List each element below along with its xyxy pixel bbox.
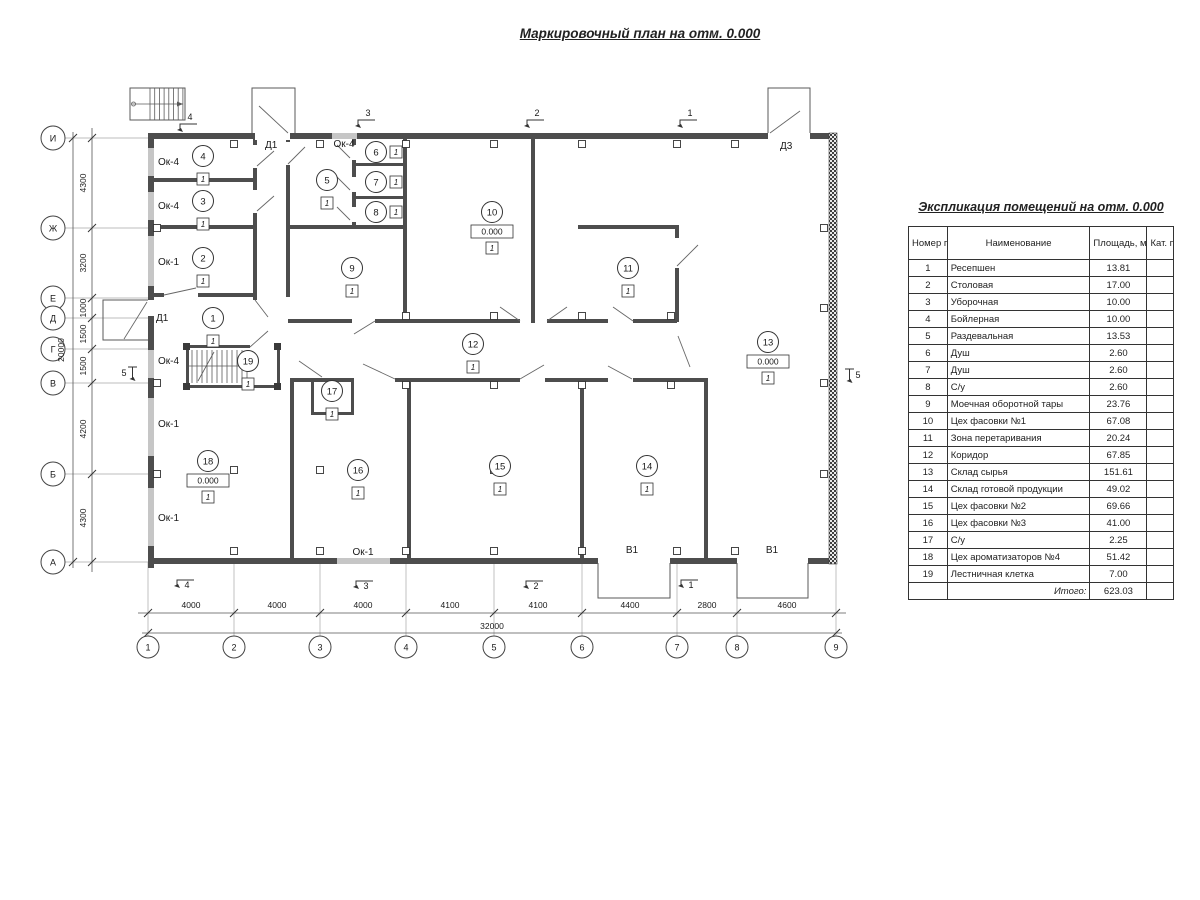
svg-text:9: 9 xyxy=(349,263,354,274)
table-row: 12Коридор67.85 xyxy=(909,447,1174,464)
plan-label: Д1 xyxy=(265,140,278,151)
svg-text:2: 2 xyxy=(200,253,205,264)
cell-category xyxy=(1147,277,1174,294)
cell-area: 2.25 xyxy=(1090,532,1147,549)
cell-name: Склад готовой продукции xyxy=(947,481,1090,498)
cell-category xyxy=(1147,328,1174,345)
cell-category xyxy=(1147,498,1174,515)
plan-label: Ок-4 xyxy=(333,139,354,150)
svg-text:18: 18 xyxy=(203,456,214,467)
cell-number: 11 xyxy=(909,430,948,447)
svg-text:1: 1 xyxy=(687,108,692,118)
plan-label: Ок-4 xyxy=(158,157,179,168)
svg-text:4: 4 xyxy=(184,580,189,590)
table-row: 9Моечная оборотной тары23.76 xyxy=(909,396,1174,413)
cell-number: 1 xyxy=(909,260,948,277)
cell-name: Душ xyxy=(947,345,1090,362)
svg-text:4100: 4100 xyxy=(441,600,460,610)
svg-text:1: 1 xyxy=(626,287,630,296)
svg-text:1: 1 xyxy=(688,580,693,590)
room-marker: 161 xyxy=(348,460,369,500)
cell-category xyxy=(1147,413,1174,430)
room-marker: 180.0001 xyxy=(187,451,229,504)
cell-number: 8 xyxy=(909,379,948,396)
stairwell-icon xyxy=(189,350,247,383)
svg-text:3200: 3200 xyxy=(78,253,88,272)
svg-text:4300: 4300 xyxy=(78,173,88,192)
plan-label: Д3 xyxy=(780,141,793,152)
svg-text:1: 1 xyxy=(211,337,215,346)
room-marker: 151 xyxy=(490,456,511,496)
svg-text:6: 6 xyxy=(373,147,378,158)
svg-text:А: А xyxy=(50,558,56,568)
room-marker: 71 xyxy=(366,172,403,193)
svg-text:4: 4 xyxy=(187,112,192,122)
cell-area: 2.60 xyxy=(1090,345,1147,362)
svg-text:10: 10 xyxy=(487,207,498,218)
svg-text:3: 3 xyxy=(200,196,205,207)
cell-category xyxy=(1147,294,1174,311)
cell-category xyxy=(1147,515,1174,532)
cell-category xyxy=(1147,345,1174,362)
svg-text:19: 19 xyxy=(243,356,254,367)
cell-number: 17 xyxy=(909,532,948,549)
room-marker: 111 xyxy=(618,258,639,298)
table-row: 3Уборочная10.00 xyxy=(909,294,1174,311)
total-label: Итого: xyxy=(947,583,1090,600)
plan-label: В1 xyxy=(626,545,639,556)
svg-text:8: 8 xyxy=(373,207,378,218)
cell-name: Душ xyxy=(947,362,1090,379)
cell-category xyxy=(1147,464,1174,481)
cell-category xyxy=(1147,481,1174,498)
table-row: 11Зона перетаривания20.24 xyxy=(909,430,1174,447)
col-header-area: Площадь, м2 xyxy=(1090,227,1147,260)
room-marker: 141 xyxy=(637,456,658,496)
cell-number: 16 xyxy=(909,515,948,532)
plan-label: Д1 xyxy=(156,313,169,324)
cell-area: 7.00 xyxy=(1090,566,1147,583)
cell-name: С/у xyxy=(947,532,1090,549)
svg-text:Е: Е xyxy=(50,294,56,304)
room-marker: 191 xyxy=(238,351,259,391)
plan-label: Ок-4 xyxy=(158,201,179,212)
table-row: 7Душ2.60 xyxy=(909,362,1174,379)
cell-area: 23.76 xyxy=(1090,396,1147,413)
svg-text:2: 2 xyxy=(534,108,539,118)
total-value: 623.03 xyxy=(1090,583,1147,600)
svg-text:1: 1 xyxy=(356,489,360,498)
explication-panel: Экспликация помещений на отм. 0.000 Номе… xyxy=(908,200,1174,600)
svg-text:1: 1 xyxy=(201,277,205,286)
cell-number: 9 xyxy=(909,396,948,413)
cell-name: Моечная оборотной тары xyxy=(947,396,1090,413)
svg-text:1: 1 xyxy=(394,148,398,157)
svg-text:Д: Д xyxy=(50,314,56,324)
svg-text:4: 4 xyxy=(200,151,205,162)
cell-name: Ресепшен xyxy=(947,260,1090,277)
cell-number xyxy=(909,583,948,600)
room-marker: 81 xyxy=(366,202,403,223)
cell-area: 151.61 xyxy=(1090,464,1147,481)
svg-text:20000: 20000 xyxy=(56,338,66,362)
svg-text:3: 3 xyxy=(365,108,370,118)
svg-text:1: 1 xyxy=(246,380,250,389)
explication-title: Экспликация помещений на отм. 0.000 xyxy=(908,200,1174,214)
svg-text:4600: 4600 xyxy=(778,600,797,610)
plan-label: Ок-4 xyxy=(158,356,179,367)
svg-text:1: 1 xyxy=(471,363,475,372)
svg-text:5: 5 xyxy=(121,368,126,378)
cell-number: 10 xyxy=(909,413,948,430)
cell-number: 2 xyxy=(909,277,948,294)
cell-name: Цех фасовки №1 xyxy=(947,413,1090,430)
svg-text:2: 2 xyxy=(231,643,236,653)
svg-text:0.000: 0.000 xyxy=(757,357,779,367)
cell-category xyxy=(1147,311,1174,328)
svg-text:И: И xyxy=(50,134,56,144)
svg-text:2: 2 xyxy=(533,581,538,591)
cell-number: 13 xyxy=(909,464,948,481)
table-row: 19Лестничная клетка7.00 xyxy=(909,566,1174,583)
svg-text:14: 14 xyxy=(642,461,653,472)
exterior-stair-icon xyxy=(132,88,184,120)
svg-text:1: 1 xyxy=(201,220,205,229)
cell-number: 5 xyxy=(909,328,948,345)
table-row: 1Ресепшен13.81 xyxy=(909,260,1174,277)
cell-number: 12 xyxy=(909,447,948,464)
svg-text:0.000: 0.000 xyxy=(481,227,503,237)
cell-number: 3 xyxy=(909,294,948,311)
cell-name: Раздевальная xyxy=(947,328,1090,345)
svg-text:Г: Г xyxy=(51,345,56,355)
svg-text:1500: 1500 xyxy=(78,324,88,343)
svg-text:1000: 1000 xyxy=(78,298,88,317)
svg-text:4300: 4300 xyxy=(78,508,88,527)
plan-label: Ок-1 xyxy=(158,513,179,524)
svg-text:1: 1 xyxy=(201,175,205,184)
svg-text:5: 5 xyxy=(855,370,860,380)
room-marker: 51 xyxy=(317,170,338,210)
svg-text:4000: 4000 xyxy=(268,600,287,610)
cell-category xyxy=(1147,566,1174,583)
table-row: 14Склад готовой продукции49.02 xyxy=(909,481,1174,498)
svg-text:3: 3 xyxy=(317,643,322,653)
cell-category xyxy=(1147,430,1174,447)
explication-table: Номер помещ. Наименование Площадь, м2 Ка… xyxy=(908,226,1174,600)
svg-text:1: 1 xyxy=(394,178,398,187)
svg-text:Ж: Ж xyxy=(49,224,58,234)
table-row: 18Цех ароматизаторов №451.42 xyxy=(909,549,1174,566)
cell-name: Лестничная клетка xyxy=(947,566,1090,583)
table-row: 6Душ2.60 xyxy=(909,345,1174,362)
cell-name: Цех фасовки №3 xyxy=(947,515,1090,532)
cell-category xyxy=(1147,379,1174,396)
cell-category xyxy=(1147,260,1174,277)
table-row: 17С/у2.25 xyxy=(909,532,1174,549)
cell-area: 10.00 xyxy=(1090,311,1147,328)
cell-name: Бойлерная xyxy=(947,311,1090,328)
svg-text:12: 12 xyxy=(468,339,479,350)
svg-text:1: 1 xyxy=(350,287,354,296)
svg-text:4100: 4100 xyxy=(529,600,548,610)
table-row: 16Цех фасовки №341.00 xyxy=(909,515,1174,532)
table-row: 5Раздевальная13.53 xyxy=(909,328,1174,345)
col-header-category: Кат. пом. xyxy=(1147,227,1174,260)
cell-number: 14 xyxy=(909,481,948,498)
col-header-name: Наименование xyxy=(947,227,1090,260)
cell-area: 67.85 xyxy=(1090,447,1147,464)
plan-label: Ок-1 xyxy=(158,257,179,268)
svg-text:1: 1 xyxy=(498,485,502,494)
col-header-number: Номер помещ. xyxy=(909,227,948,260)
plan-label: Ок-1 xyxy=(158,419,179,430)
svg-text:3: 3 xyxy=(363,581,368,591)
cell-area: 2.60 xyxy=(1090,362,1147,379)
svg-text:17: 17 xyxy=(327,386,338,397)
drawing-sheet: { "page": { "title": "Маркировочный план… xyxy=(0,0,1200,900)
svg-text:1: 1 xyxy=(490,244,494,253)
cell-number: 15 xyxy=(909,498,948,515)
cell-area: 67.08 xyxy=(1090,413,1147,430)
svg-text:7: 7 xyxy=(674,643,679,653)
room-marker: 91 xyxy=(342,258,363,298)
cell-area: 10.00 xyxy=(1090,294,1147,311)
cell-area: 13.53 xyxy=(1090,328,1147,345)
cell-name: Зона перетаривания xyxy=(947,430,1090,447)
plan-label: Ок-1 xyxy=(352,547,373,558)
svg-text:1: 1 xyxy=(645,485,649,494)
svg-text:4: 4 xyxy=(403,643,408,653)
cell-area: 51.42 xyxy=(1090,549,1147,566)
svg-text:1: 1 xyxy=(206,493,210,502)
cell-name: Склад сырья xyxy=(947,464,1090,481)
cell-name: Столовая xyxy=(947,277,1090,294)
table-row: 10Цех фасовки №167.08 xyxy=(909,413,1174,430)
svg-text:15: 15 xyxy=(495,461,506,472)
room-marker: 31 xyxy=(193,191,214,231)
cell-number: 18 xyxy=(909,549,948,566)
door-swings xyxy=(124,106,800,379)
cell-category xyxy=(1147,583,1174,600)
svg-text:4000: 4000 xyxy=(354,600,373,610)
room-marker: 100.0001 xyxy=(471,202,513,255)
svg-text:2800: 2800 xyxy=(698,600,717,610)
plan-label: В1 xyxy=(766,545,779,556)
svg-text:1: 1 xyxy=(330,410,334,419)
cell-number: 19 xyxy=(909,566,948,583)
cell-category xyxy=(1147,447,1174,464)
cell-name: Уборочная xyxy=(947,294,1090,311)
svg-text:5: 5 xyxy=(491,643,496,653)
cell-area: 17.00 xyxy=(1090,277,1147,294)
svg-text:1500: 1500 xyxy=(78,356,88,375)
svg-text:13: 13 xyxy=(763,337,774,348)
svg-text:1: 1 xyxy=(145,643,150,653)
cell-number: 4 xyxy=(909,311,948,328)
svg-text:6: 6 xyxy=(579,643,584,653)
cell-area: 2.60 xyxy=(1090,379,1147,396)
room-marker: 11 xyxy=(203,308,224,348)
room-marker: 61 xyxy=(366,142,403,163)
svg-text:В: В xyxy=(50,379,56,389)
walls xyxy=(148,133,837,568)
table-row: 13Склад сырья151.61 xyxy=(909,464,1174,481)
svg-text:1: 1 xyxy=(210,313,215,324)
cell-area: 13.81 xyxy=(1090,260,1147,277)
room-marker: 121 xyxy=(463,334,484,374)
svg-text:7: 7 xyxy=(373,177,378,188)
svg-text:1: 1 xyxy=(766,374,770,383)
room-marker: 21 xyxy=(193,248,214,288)
svg-text:8: 8 xyxy=(734,643,739,653)
room-marker: 130.0001 xyxy=(747,332,789,385)
cell-area: 49.02 xyxy=(1090,481,1147,498)
cell-number: 7 xyxy=(909,362,948,379)
cell-name: Коридор xyxy=(947,447,1090,464)
svg-text:5: 5 xyxy=(324,175,329,186)
cell-name: Цех ароматизаторов №4 xyxy=(947,549,1090,566)
svg-text:1: 1 xyxy=(325,199,329,208)
svg-text:Б: Б xyxy=(50,470,56,480)
svg-text:4400: 4400 xyxy=(621,600,640,610)
cell-number: 6 xyxy=(909,345,948,362)
cell-name: Цех фасовки №2 xyxy=(947,498,1090,515)
table-row: 2Столовая17.00 xyxy=(909,277,1174,294)
table-row: 15Цех фасовки №269.66 xyxy=(909,498,1174,515)
cell-name: С/у xyxy=(947,379,1090,396)
svg-text:4200: 4200 xyxy=(78,419,88,438)
cell-category xyxy=(1147,362,1174,379)
cell-area: 20.24 xyxy=(1090,430,1147,447)
table-row: 8С/у2.60 xyxy=(909,379,1174,396)
cell-area: 41.00 xyxy=(1090,515,1147,532)
cell-area: 69.66 xyxy=(1090,498,1147,515)
svg-text:9: 9 xyxy=(833,643,838,653)
cell-category xyxy=(1147,396,1174,413)
svg-text:0.000: 0.000 xyxy=(197,476,219,486)
cell-category xyxy=(1147,549,1174,566)
svg-text:4000: 4000 xyxy=(182,600,201,610)
table-row: 4Бойлерная10.00 xyxy=(909,311,1174,328)
svg-text:16: 16 xyxy=(353,465,364,476)
svg-text:32000: 32000 xyxy=(480,621,504,631)
svg-text:11: 11 xyxy=(623,263,633,274)
table-total-row: Итого:623.03 xyxy=(909,583,1174,600)
svg-text:1: 1 xyxy=(394,208,398,217)
cell-category xyxy=(1147,532,1174,549)
